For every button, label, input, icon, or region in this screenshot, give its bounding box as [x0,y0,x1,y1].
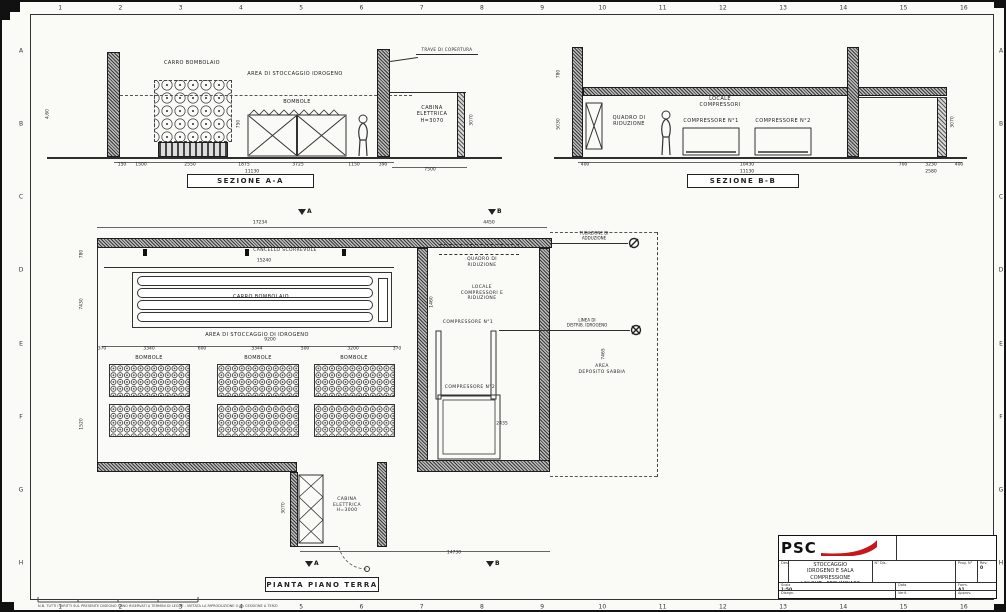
dimension-label: 1500 [135,163,146,168]
dimension-label: 780 [80,250,85,259]
grid-reference-letter: C [999,194,1003,201]
grid-reference-number: 4 [239,5,243,12]
corner-mark-br [994,604,1004,610]
field-value: 0 [980,566,994,571]
corner-mark-tr [994,2,1004,8]
leader-line [550,243,628,244]
label-leader-2: LINEA DI DISTRIB. IDROGENO [567,318,607,328]
grid-reference-number: 5 [299,604,303,611]
dimension-label: 3344 [251,347,262,352]
label-quadro-plan: QUADRO DI RIDUZIONE [467,257,497,268]
person-figure-icon [657,110,675,157]
section-arrow-icon [298,209,306,215]
field-label: Verif. [898,592,953,596]
section-marker-a-bottom: A [305,560,319,567]
grid-reference-number: 15 [900,5,908,12]
dimension-label: 5030 [557,118,562,129]
dimension-label: 7465 [602,348,607,359]
dimension-label: 14730 [447,551,461,556]
grid-reference-number: 8 [480,604,484,611]
grid-reference-number: 11 [659,604,667,611]
label-cabina-plan: CABINA ELETTRICA H=3000 [333,497,361,514]
grid-reference-number: 11 [659,5,667,12]
roof-beam [583,87,947,96]
grid-reference-number: 10 [599,604,607,611]
grid-reference-letter: H [999,560,1004,567]
quadro-riduzione-outline [439,244,519,245]
dimension-label: 3230 [925,163,936,168]
dimension-label: 17234 [253,221,267,226]
field-value: 1:50 [781,588,893,590]
grid-reference-letter: A [19,47,23,54]
cabina-left-wall [290,472,298,547]
label-bombole: BOMBOLE [283,99,311,105]
grid-reference-letter: F [999,413,1002,420]
cabin-wall [457,92,465,157]
plan-right-wall [539,248,550,472]
grid-reference-letter: E [999,340,1003,347]
reduction-panel [585,102,603,150]
label-carro-plan: CARRO BOMBOLAIO [233,294,289,300]
cylinder-trailer-rack [154,80,232,142]
wall-column [937,97,947,157]
wall-column [107,52,120,157]
label-compressore-1: COMPRESSORE N°1 [683,118,738,124]
grid-reference-number: 16 [960,5,968,12]
grid-reference-letter: H [19,560,24,567]
dimension-label: 3725 [292,163,303,168]
title-block-notes-cell [897,536,996,560]
ground-line [47,157,502,159]
label-quadro-riduzione: QUADRO DI RIDUZIONE [613,115,646,128]
field-label: Approv. [958,592,994,596]
dimension-label: 2550 [184,163,195,168]
dimension-label: 1875 [238,163,249,168]
dimension-line [97,227,547,228]
label-bombole-1: BOMBOLE [135,355,163,361]
field-label: N° Dis. [875,562,954,566]
cabina-lattice-tower [298,474,324,544]
section-arrow-icon [486,561,494,567]
section-arrow-icon [488,209,496,215]
wall-column [572,47,583,157]
label-cabina-elettrica: CABINA ELETTRICA H=3070 [417,105,448,124]
company-logo: PSC [779,536,897,560]
label-locale-compressori: LOCALE COMPRESSORI [699,96,740,109]
compressor-2-plan [437,394,501,460]
label-cancello: CANCELLO SCORREVOLE [253,248,317,253]
label-bombole-2: BOMBOLE [244,355,272,361]
view-title-pianta: PIANTA PIANO TERRA [265,577,379,592]
dimension-label: 400 [955,163,964,168]
grid-reference-letter: G [19,487,24,494]
dimension-label: 400 [581,163,590,168]
grid-reference-number: 15 [900,604,908,611]
view-title-sezione-bb: SEZIONE B-B [687,174,799,188]
label-area-stoccaggio: AREA DI STOCCAGGIO IDROGENO [247,71,342,77]
grid-reference-number: 14 [840,604,848,611]
gate-post [143,249,147,256]
dimension-label: 2435 [496,422,507,427]
grid-reference-number: 3 [179,5,183,12]
dimension-label: 370 [98,347,107,352]
dimension-label: 750 [237,120,242,129]
title-block-field: Approv. [956,591,996,598]
wall-column [847,47,859,157]
label-bombole-3: BOMBOLE [340,355,368,361]
dimension-label: 150 [118,163,127,168]
roof-line [390,92,466,93]
title-block-field: Disegn. [779,591,896,598]
label-compressore1-plan: COMPRESSORE N°1 [443,320,493,325]
grid-reference-number: 13 [779,604,787,611]
rack-gap [217,396,299,405]
grid-reference-number: 7 [420,5,424,12]
section-arrow-icon [305,561,313,567]
dimension-label: 3200 [347,347,358,352]
sabbia-area-boundary [657,232,658,477]
dimension-label: 3070 [282,502,287,513]
person-figure-icon [354,114,372,158]
grid-reference-number: 16 [960,604,968,611]
pipe-connection-symbol [630,324,642,336]
logo-text: PSC [781,539,817,557]
title-block-field: Prog. N° [956,561,978,582]
grid-reference-letter: B [19,120,23,127]
grid-reference-letter: C [19,194,23,201]
dimension-label: 600 [198,347,207,352]
dimension-label: 3070 [470,114,475,125]
plan-mid-wall [417,248,428,472]
cabina-right-wall [377,462,387,547]
grid-reference-number: 7 [420,604,424,611]
cylinder-trailer-plan [132,272,392,328]
grid-reference-letter: G [999,487,1004,494]
title-block-field: Verif. [896,591,956,598]
dimension-label: 3070 [951,116,956,127]
leader-line [416,54,478,55]
section-marker-b-top: B [488,208,502,215]
label-carro-bombolaio: CARRO BOMBOLAIO [164,60,220,66]
corner-mark-bl [2,602,14,610]
compressor-1-elevation [682,127,740,156]
drawing-title: LOCALI - IMPIANTO DI STOCCAGGIO IDROGENO… [789,561,873,582]
wall-column [377,49,390,157]
pipe-connection-symbol [628,237,640,249]
dimension-label: 7430 [80,298,85,309]
descr-label: Descr. [779,561,789,582]
dimension-line [300,551,550,552]
copyright-note: N.B. TUTTI I DIRITTI SUL PRESENTE DISEGN… [38,604,278,608]
ground-line [554,157,967,159]
plan-top-wall [97,238,552,248]
dimension-label: 3340 [143,347,154,352]
gate-post [342,249,346,256]
dimension-label: 9200 [264,338,275,343]
gate-post [245,249,249,256]
grid-reference-number: 8 [480,5,484,12]
title-block: PSC Descr. LOCALI - IMPIANTO DI STOCCAGG… [778,535,997,599]
scale-bar [38,597,198,603]
dimension-label: 700 [899,163,908,168]
dimension-label: 2580 [925,170,936,175]
cylinder-manifold-frame [247,107,347,157]
sabbia-area-boundary-bottom [550,476,657,477]
plan-bottom-wall-left [97,462,297,472]
title-block-field: N° Dis. [873,561,957,582]
grid-reference-number: 12 [719,604,727,611]
roof-line [859,97,947,98]
grid-reference-letter: B [999,120,1003,127]
dimension-label: 390 [379,163,388,168]
dimension-label: 4,60 [46,109,51,119]
field-value: A1 [958,588,994,590]
cabina-bottom-line [298,546,338,547]
compressor-2-elevation [754,127,812,156]
field-label: Data [898,584,953,588]
field-label: Prog. N° [958,562,975,566]
grid-reference-number: 6 [359,604,363,611]
dimension-label: 1150 [348,163,359,168]
grid-reference-number: 10 [599,5,607,12]
section-marker-a-top: A [298,208,312,215]
section-marker-b-bottom: B [486,560,500,567]
dimension-label: 370 [393,347,402,352]
dimension-label: 1460 [430,296,435,307]
label-compressore-2: COMPRESSORE N°2 [755,118,810,124]
grid-reference-number: 5 [299,5,303,12]
dimension-label: 500 [301,347,310,352]
grid-reference-letter: F [19,413,22,420]
label-leader-1: TUBAZIONE DI ADDUZIONE [580,231,609,241]
corner-mark-tl2 [2,2,10,20]
grid-reference-number: 6 [359,5,363,12]
rack-gap [109,396,190,405]
plan-left-line [97,248,98,472]
grid-reference-number: 1 [58,5,62,12]
rack-support-legs [158,142,228,157]
grid-reference-number: 2 [118,5,122,12]
grid-reference-letter: D [999,267,1004,274]
grid-reference-letter: D [19,267,24,274]
dimension-label: 4450 [483,221,494,226]
grid-reference-number: 13 [779,5,787,12]
label-locale-plan: LOCALE COMPRESSORI E RIDUZIONE [461,285,503,302]
dimension-label: 10430 [740,163,754,168]
field-label: Disegn. [781,592,893,596]
grid-reference-letter: A [999,47,1003,54]
label-area-sabbia: AREA DEPOSITO SABBIA [578,364,625,375]
quadro-riduzione-outline [439,254,519,255]
plan-bottom-wall-right [417,460,550,472]
rack-gap [314,396,395,405]
grid-reference-number: 9 [540,604,544,611]
title-block-field: Form.A1 [956,583,996,590]
logo-swoosh-icon [819,539,879,557]
dimension-label: 15240 [257,259,271,264]
label-trave-copertura: TRAVE DI COPERTURA [422,47,473,52]
label-area-stoccaggio-plan: AREA DI STOCCAGGIO DI IDROGENO [205,332,309,338]
title-block-field: Scala1:50 [779,583,896,590]
dimension-label: 7500 [424,168,435,173]
drawing-sheet: 1122334455667788991010111112121313141415… [0,0,1006,612]
dimension-label: 1520 [80,418,85,429]
grid-reference-letter: E [19,340,23,347]
title-block-field: Data [896,583,956,590]
view-title-sezione-aa: SEZIONE A-A [187,174,314,188]
grid-reference-number: 14 [840,5,848,12]
sliding-gate-line [104,267,394,268]
grid-reference-number: 12 [719,5,727,12]
grid-reference-number: 9 [540,5,544,12]
title-block-field: Rev.0 [978,561,996,582]
label-compressore2-plan: COMPRESSORE N°2 [445,385,495,390]
leader-line [499,330,630,331]
dimension-label: 780 [557,70,562,79]
